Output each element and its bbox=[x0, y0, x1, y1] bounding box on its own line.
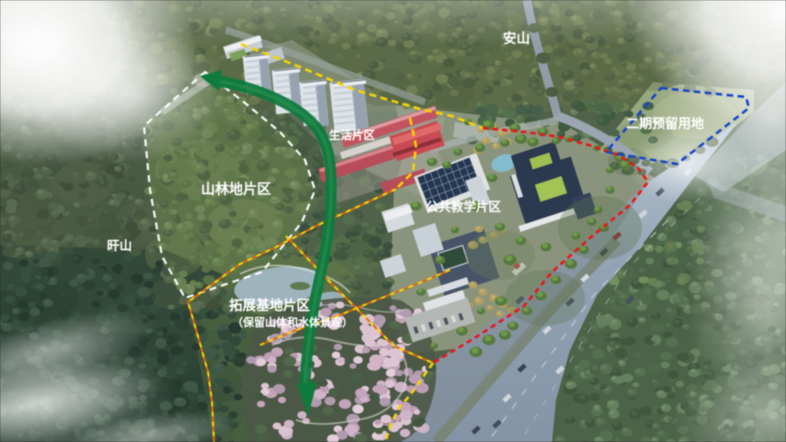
svg-text:公共教学片区: 公共教学片区 bbox=[426, 199, 502, 214]
svg-text:生活片区: 生活片区 bbox=[329, 128, 375, 142]
svg-text:山林地片区: 山林地片区 bbox=[201, 181, 271, 197]
svg-text:旰山: 旰山 bbox=[107, 238, 132, 253]
svg-text:（保留山体和水体景观）: （保留山体和水体景观） bbox=[232, 315, 353, 329]
svg-text:二期预留用地: 二期预留用地 bbox=[626, 116, 704, 131]
svg-text:拓展基地片区: 拓展基地片区 bbox=[229, 297, 310, 313]
svg-text:安山: 安山 bbox=[503, 30, 530, 46]
